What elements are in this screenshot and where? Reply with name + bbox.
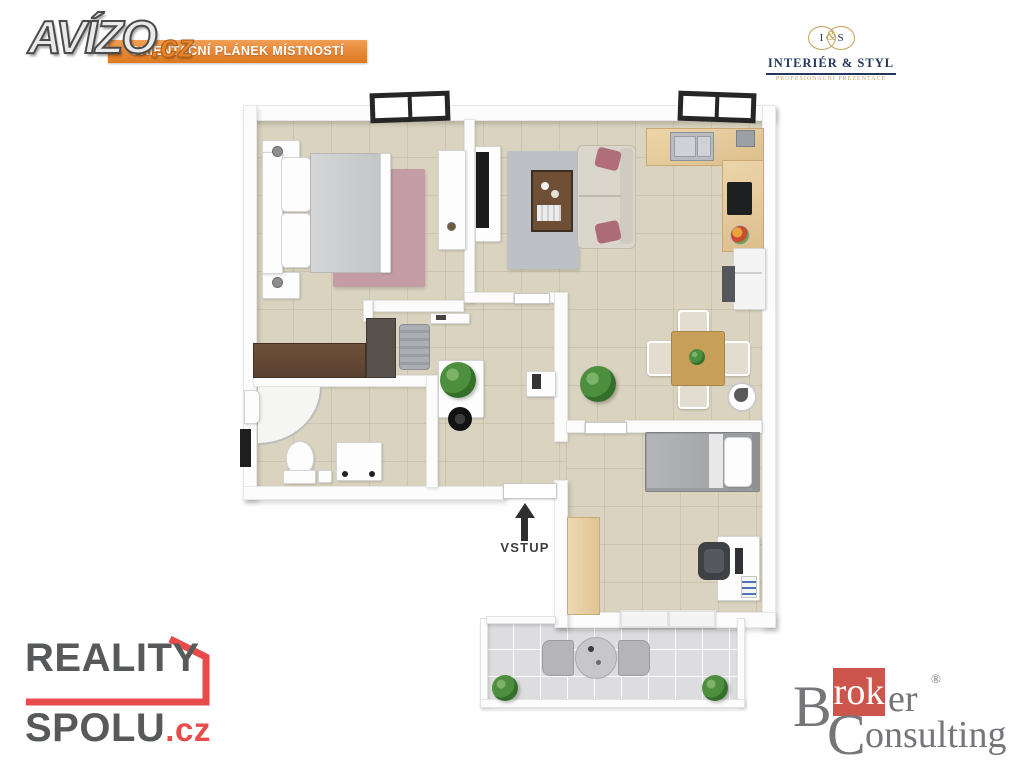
pc-tower	[741, 576, 757, 598]
avizo-tld: .cz	[151, 28, 194, 64]
window-icon	[678, 91, 757, 124]
oven	[722, 266, 735, 302]
avizo-wordmark: AVÍZO	[28, 11, 155, 63]
wall-bedroom1-bottom	[373, 300, 464, 312]
toilet-tank	[283, 470, 316, 484]
entrance-door	[503, 483, 557, 499]
coffee-machine	[736, 130, 755, 147]
balcony-table	[575, 637, 617, 679]
monitor-icon	[735, 548, 743, 574]
wardrobe	[366, 318, 396, 378]
balcony-chair	[542, 640, 574, 676]
dining-chair	[678, 384, 709, 409]
balcony-wall-top	[486, 616, 556, 624]
potted-plant	[440, 362, 476, 398]
monogram-ampersand: &	[764, 29, 898, 45]
registered-icon: ®	[931, 672, 941, 685]
sink-basin	[674, 136, 696, 157]
radiator	[240, 429, 251, 467]
potted-plant	[492, 675, 518, 701]
broker-tail: er	[888, 680, 918, 718]
reality-text: REALITY	[25, 636, 200, 681]
fruit-bowl	[730, 225, 750, 245]
spolu-tld: .cz	[165, 711, 211, 748]
bedroom-sideboard	[438, 150, 466, 250]
table-item	[596, 660, 601, 665]
double-bed-headboard	[262, 152, 283, 274]
outer-wall-right	[762, 105, 776, 628]
terrace-window	[620, 610, 716, 628]
broker-consulting-logo: B rok er ® C onsulting	[793, 666, 1021, 758]
bathroom-sink	[244, 390, 260, 424]
interier-styl-divider	[766, 73, 896, 75]
coffee-table	[531, 170, 573, 232]
window-icon	[370, 91, 451, 124]
sink-basin	[697, 136, 711, 157]
dining-chair	[723, 341, 750, 376]
washer-knob	[342, 471, 348, 477]
consulting-tail: onsulting	[865, 716, 1006, 754]
fridge	[733, 248, 766, 310]
magazine	[537, 205, 561, 221]
hall-door	[514, 293, 550, 304]
coffee-mug	[551, 190, 559, 198]
bedroom2-door	[585, 422, 627, 434]
tv-icon	[476, 152, 489, 228]
lamp-icon	[447, 222, 456, 231]
wardrobe	[567, 517, 600, 615]
entrance-arrow-shaft	[521, 517, 528, 541]
window-mullion	[715, 97, 720, 117]
entrance-arrow-icon	[515, 503, 535, 518]
sofa-seam	[579, 195, 621, 197]
balcony-chair	[618, 640, 650, 676]
double-bed-blanket	[310, 153, 382, 273]
bathroom-bin	[318, 470, 332, 483]
spolu-word: SPOLU	[25, 706, 165, 750]
interier-styl-logo: IS & INTERIÉR & STYL PROFESIONÁLNÍ PREZE…	[764, 26, 898, 82]
shelf-item	[436, 315, 446, 320]
interier-styl-title: INTERIÉR & STYL	[764, 56, 898, 71]
dining-chair	[647, 341, 674, 376]
office-desk	[253, 343, 366, 378]
single-bed-blanket	[647, 434, 709, 488]
coffee-mug	[541, 182, 549, 190]
washer-knob	[369, 471, 375, 477]
wall-bedroom2-top-a	[566, 420, 585, 433]
double-bed-pillow	[281, 157, 311, 212]
table-centerpiece	[689, 349, 705, 365]
wall-fan-center	[734, 388, 748, 402]
entrance-label: VSTUP	[492, 540, 558, 555]
interier-styl-subtitle: PROFESIONÁLNÍ PREZENTACE	[764, 76, 898, 82]
reality-spolu-logo: REALITY SPOLU.cz	[24, 636, 244, 754]
balcony-wall-right	[737, 618, 745, 706]
single-bed-headboard	[752, 432, 760, 490]
spolu-text: SPOLU.cz	[25, 706, 211, 751]
office-chair	[399, 324, 430, 370]
table-item	[588, 646, 594, 652]
window-mullion	[667, 612, 670, 626]
single-bed-pillow	[724, 437, 752, 487]
desk-chair-seat	[704, 549, 724, 573]
robot-vacuum	[448, 407, 472, 431]
sofa-backrest	[620, 148, 633, 244]
single-bed-sheet	[709, 434, 723, 488]
double-bed-pillow	[281, 213, 311, 268]
lamp-icon	[272, 277, 283, 288]
broker-initial: B	[793, 678, 832, 736]
consulting-initial: C	[827, 706, 866, 764]
interier-styl-monogram: IS &	[764, 26, 898, 54]
avizo-logo: AVÍZO.cz	[28, 10, 194, 64]
cooktop	[727, 182, 752, 215]
wall-living-hall-a	[464, 292, 514, 303]
balcony-wall-left	[480, 618, 488, 706]
wall-bathroom-right	[426, 375, 438, 488]
window-mullion	[408, 97, 413, 117]
hall-console	[526, 371, 556, 397]
fridge-door-line	[735, 272, 762, 274]
potted-plant	[702, 675, 728, 701]
lamp-icon	[272, 146, 283, 157]
outer-wall-bottom-main	[243, 486, 505, 500]
double-bed-foot	[380, 153, 391, 273]
balcony-railing	[480, 699, 745, 708]
potted-plant	[580, 366, 616, 402]
console-item	[532, 374, 541, 389]
